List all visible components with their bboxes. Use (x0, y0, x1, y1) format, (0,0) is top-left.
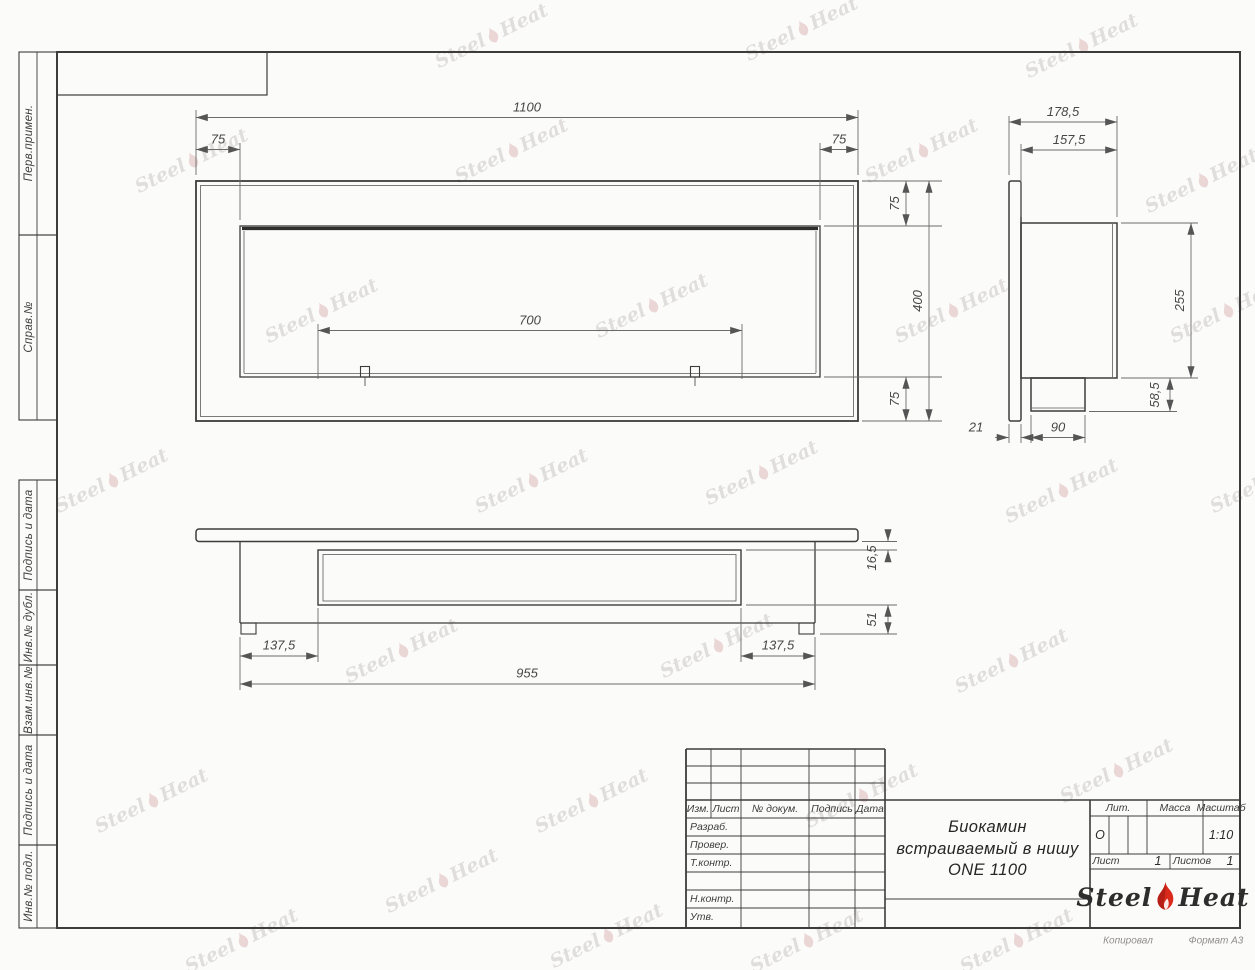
tb-header-podpis: Подпись (811, 803, 853, 815)
tb-row-utv: Утв. (690, 911, 714, 923)
logo-heat: Heat (1178, 883, 1249, 912)
margin-label-inv-dubl: Инв.№ дубл. (23, 592, 35, 663)
tb-row-prover: Провер. (690, 839, 729, 851)
tb-mass-label: Масса (1159, 802, 1190, 814)
margin-label-sprav-no: Справ.№ (23, 301, 35, 352)
footer-copied: Копировал (1103, 936, 1153, 947)
tb-sheets-value: 1 (1227, 854, 1234, 868)
logo-steel: Steel (1076, 883, 1152, 912)
tb-sheets-label: Листов (1173, 855, 1211, 867)
document-title: Биокамин встраиваемый в нишу ONE 1100 (887, 802, 1088, 897)
tb-header-data: Дата (856, 803, 884, 815)
tb-sheet-value: 1 (1155, 854, 1162, 868)
steelheat-logo: Steel Heat (1076, 882, 1249, 912)
tb-row-nkontr: Н.контр. (690, 893, 734, 905)
tb-lit-value: О (1095, 828, 1105, 842)
tb-lit-label: Лит. (1106, 802, 1131, 814)
margin-label-podpis-data-1: Подпись и дата (23, 489, 35, 580)
flame-icon (1153, 882, 1177, 912)
footer-format: Формат А3 (1189, 936, 1244, 947)
tb-header-izm: Изм. (687, 803, 709, 815)
tb-row-razrab: Разраб. (690, 821, 728, 833)
margin-label-vzam-inv: Взам.инв.№ (23, 666, 35, 734)
tb-row-tkontr: Т.контр. (690, 857, 732, 869)
margin-label-inv-podl: Инв.№ подл. (23, 850, 35, 921)
tb-header-list: Лист (712, 803, 739, 815)
drawing-sheet: Steel Heat Steel Heat Steel Heat Steel H… (0, 0, 1255, 970)
tb-sheet-label: Лист (1092, 855, 1119, 867)
text-layer: Перв.примен. Справ.№ Подпись и дата Инв.… (0, 0, 1255, 970)
tb-header-ndokum: № докум. (752, 803, 798, 815)
tb-scale-label: Масштаб (1196, 802, 1245, 814)
tb-scale-value: 1:10 (1209, 828, 1233, 842)
margin-label-perv-primen: Перв.примен. (23, 105, 35, 182)
margin-label-podpis-data-2: Подпись и дата (23, 744, 35, 835)
